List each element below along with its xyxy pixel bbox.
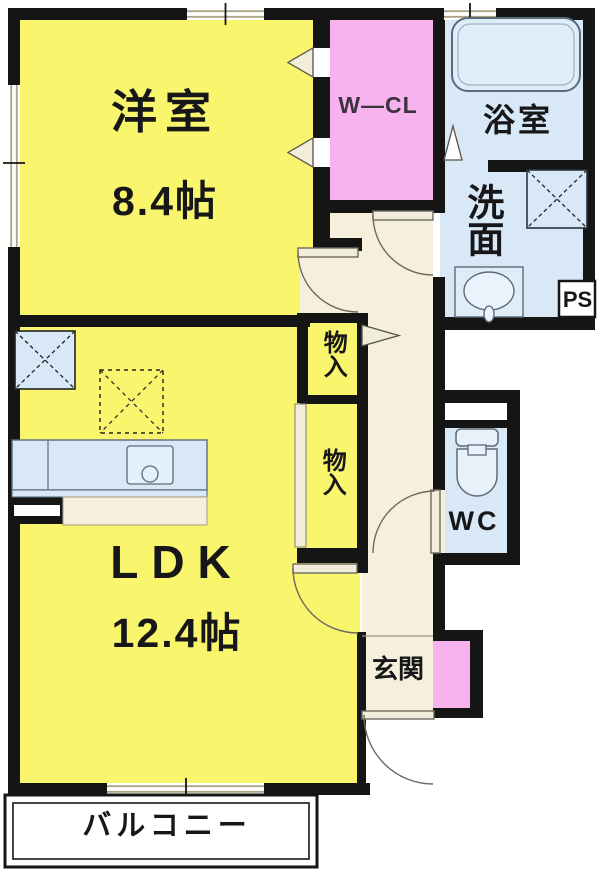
western-room-label: 洋室 [55,88,275,136]
entrance-label: 玄関 [361,656,435,683]
washbasin [455,267,523,322]
western-room-size: 8.4帖 [55,180,275,223]
washing-machine [527,170,587,228]
wall-wc-north [433,390,520,403]
wall-corner-stub [350,783,367,795]
wall-wc-south [433,553,520,565]
western-room-floor [14,14,316,320]
storage-lower-label: 物入 [319,448,344,496]
refrigerator-space [15,331,75,389]
wall-washroom-bottom [433,317,595,330]
wall-hall-east-b [433,553,445,638]
kitchen-faucet [142,466,158,482]
corridor-floor [362,206,433,638]
shoe-cabinet [433,641,472,710]
wcl-door-gap-1 [313,48,330,77]
kitchen-stub-opening [14,505,60,516]
wall-storage-divider [300,395,357,404]
balcony-label: バルコニー [36,811,298,841]
wall-storage-east [357,313,368,573]
toilet [456,429,498,496]
wall-wc-east [507,390,520,565]
storage-upper-label: 物入 [320,330,345,378]
bathtub [452,18,580,91]
window-wc-north [445,403,507,420]
wall-storage-west [297,313,308,403]
wall-western-south [8,315,310,327]
toilet-label: WC [441,507,507,535]
storage-lower-door [295,404,306,547]
counter-front [63,497,207,525]
wall-entrance-nook-bottom [433,708,483,718]
pipe-space-label: PS [561,288,594,311]
wall-wc-window-jamb [445,420,507,428]
hall-alcove-floor [300,250,362,313]
floor-plan: 洋室 8.4帖 W—CL 浴室 洗面 PS 物入 物入 WC LDK 12.4帖… [0,0,600,876]
washroom-label: 洗面 [462,183,501,257]
walk-in-closet-label: W—CL [320,93,436,117]
wall-entrance-nook-east [470,630,483,718]
ldk-size: 12.4帖 [36,612,318,655]
wcl-door-gap-2 [313,138,330,167]
bathroom-label: 浴室 [448,104,588,138]
wall-western-east [313,8,330,252]
ldk-label: LDK [36,538,318,586]
wall-hall-east-a [433,277,445,492]
